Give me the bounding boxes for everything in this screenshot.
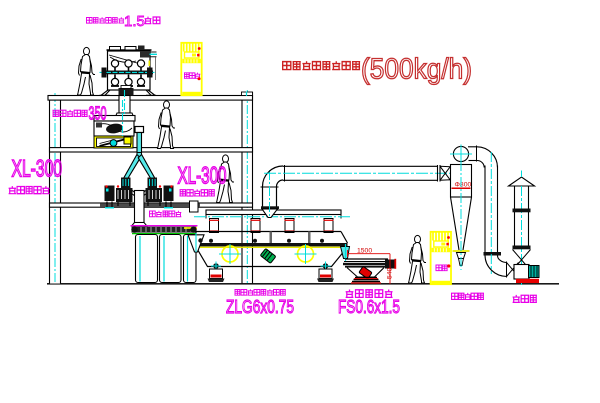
svg-text:XL-300: XL-300: [12, 156, 63, 182]
svg-text:Φ800: Φ800: [455, 182, 472, 189]
svg-text:1500: 1500: [357, 248, 372, 255]
svg-text:350: 350: [89, 103, 107, 124]
svg-text:ZLG6x0.75: ZLG6x0.75: [226, 296, 294, 317]
svg-text:XL-300: XL-300: [178, 163, 227, 189]
svg-text:1.5: 1.5: [124, 13, 145, 30]
svg-text:FS0.6x1.5: FS0.6x1.5: [338, 296, 400, 317]
svg-text:540: 540: [387, 267, 394, 279]
svg-text:(500kg/h): (500kg/h): [361, 52, 472, 85]
